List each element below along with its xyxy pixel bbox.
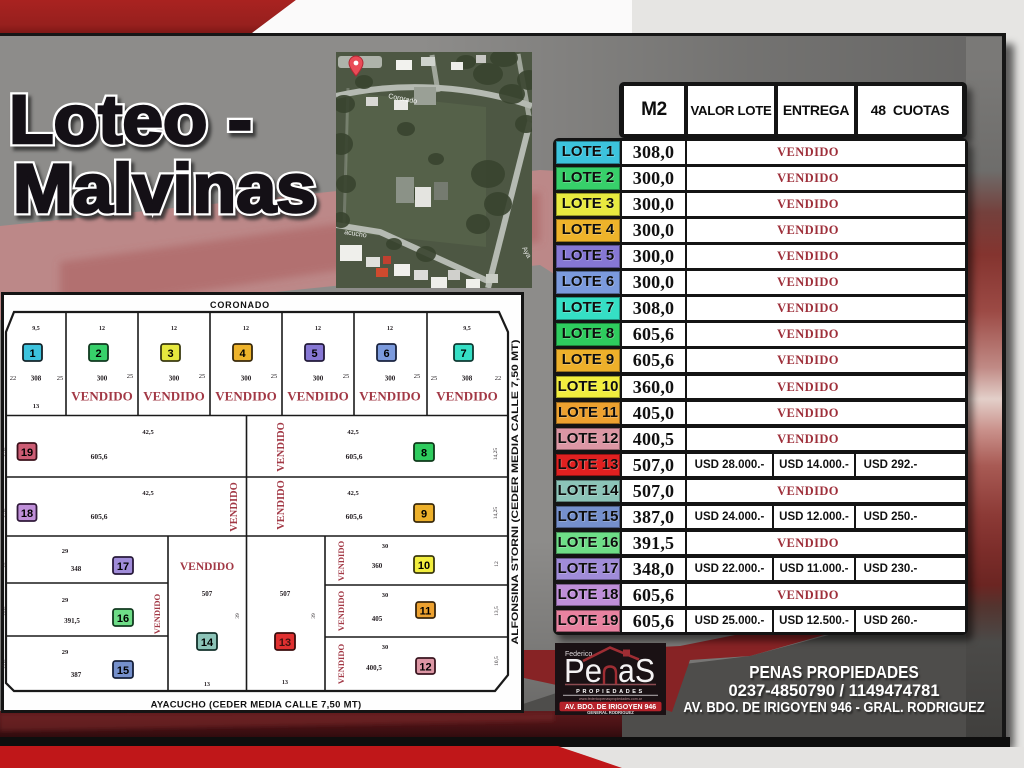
svg-text:13,5: 13,5 xyxy=(494,606,500,616)
svg-text:10,5: 10,5 xyxy=(1,659,7,669)
svg-text:300: 300 xyxy=(241,375,252,383)
svg-text:308: 308 xyxy=(462,375,473,383)
svg-text:22: 22 xyxy=(10,375,17,382)
svg-text:9,5: 9,5 xyxy=(463,326,471,332)
svg-text:VENDIDO: VENDIDO xyxy=(152,594,162,635)
svg-text:12: 12 xyxy=(99,326,105,332)
svg-text:22: 22 xyxy=(495,375,502,382)
svg-text:Loteo -: Loteo - xyxy=(9,81,252,158)
svg-text:29: 29 xyxy=(62,649,69,656)
svg-text:ALFONSINA STORNI (CEDER MEDIA: ALFONSINA STORNI (CEDER MEDIA CALLE 7,50… xyxy=(510,340,521,645)
svg-text:12: 12 xyxy=(387,326,393,332)
svg-text:7: 7 xyxy=(460,348,466,360)
svg-text:12: 12 xyxy=(315,326,321,332)
svg-text:348: 348 xyxy=(71,565,82,573)
svg-text:300: 300 xyxy=(169,375,180,383)
svg-text:605,6: 605,6 xyxy=(346,452,363,461)
svg-text:507: 507 xyxy=(202,590,213,598)
svg-text:Malvinas: Malvinas xyxy=(13,150,316,227)
svg-text:9: 9 xyxy=(421,509,427,521)
svg-text:3: 3 xyxy=(167,348,173,360)
svg-text:14,3: 14,3 xyxy=(1,447,7,457)
svg-text:605,6: 605,6 xyxy=(91,452,108,461)
svg-text:42,5: 42,5 xyxy=(347,490,359,497)
svg-text:19: 19 xyxy=(21,447,33,459)
svg-text:6: 6 xyxy=(383,348,389,360)
svg-text:13: 13 xyxy=(204,682,210,688)
svg-text:25: 25 xyxy=(431,375,438,382)
svg-text:VENDIDO: VENDIDO xyxy=(71,389,132,404)
svg-text:12: 12 xyxy=(494,561,500,567)
svg-text:VENDIDO: VENDIDO xyxy=(436,389,497,404)
svg-text:387: 387 xyxy=(71,671,82,679)
svg-text:14,3: 14,3 xyxy=(1,508,7,518)
svg-text:10,5: 10,5 xyxy=(494,656,500,666)
svg-text:42,5: 42,5 xyxy=(142,429,154,436)
svg-text:17: 17 xyxy=(117,561,129,573)
svg-text:300: 300 xyxy=(385,375,396,383)
svg-text:AYACUCHO (CEDER MEDIA CALLE 7,: AYACUCHO (CEDER MEDIA CALLE 7,50 MT) xyxy=(151,700,362,711)
svg-text:30: 30 xyxy=(382,644,389,651)
svg-text:16: 16 xyxy=(117,613,129,625)
svg-text:VENDIDO: VENDIDO xyxy=(336,541,346,582)
svg-text:12: 12 xyxy=(419,662,431,674)
svg-text:13: 13 xyxy=(279,637,291,649)
svg-text:VENDIDO: VENDIDO xyxy=(276,422,287,472)
svg-text:VENDIDO: VENDIDO xyxy=(143,389,204,404)
svg-text:405: 405 xyxy=(372,615,383,623)
svg-text:39: 39 xyxy=(235,613,241,619)
svg-text:12: 12 xyxy=(243,326,249,332)
svg-text:12: 12 xyxy=(171,326,177,332)
svg-text:391,5: 391,5 xyxy=(64,617,80,625)
svg-text:25: 25 xyxy=(271,373,278,380)
svg-text:VENDIDO: VENDIDO xyxy=(229,482,240,532)
svg-text:CORONADO: CORONADO xyxy=(210,300,270,310)
svg-text:18: 18 xyxy=(21,508,33,520)
svg-text:GENERAL RODRIGUEZ: GENERAL RODRIGUEZ xyxy=(587,710,634,715)
svg-text:400,5: 400,5 xyxy=(366,664,382,672)
svg-text:VENDIDO: VENDIDO xyxy=(180,561,234,573)
svg-text:VENDIDO: VENDIDO xyxy=(276,480,287,530)
svg-text:2: 2 xyxy=(95,348,101,360)
svg-text:8: 8 xyxy=(421,448,427,460)
svg-text:25: 25 xyxy=(127,373,134,380)
svg-text:14: 14 xyxy=(201,637,214,649)
svg-text:30: 30 xyxy=(382,543,389,550)
svg-text:605,6: 605,6 xyxy=(346,512,363,521)
svg-text:42,5: 42,5 xyxy=(142,490,154,497)
svg-text:13: 13 xyxy=(33,403,40,410)
svg-text:300: 300 xyxy=(313,375,324,383)
svg-text:aS: aS xyxy=(618,652,655,689)
svg-text:15: 15 xyxy=(1,562,7,568)
svg-text:25: 25 xyxy=(199,373,206,380)
svg-text:Pe: Pe xyxy=(564,652,602,689)
svg-text:9,5: 9,5 xyxy=(32,326,40,332)
svg-text:VENDIDO: VENDIDO xyxy=(287,389,348,404)
svg-text:25: 25 xyxy=(343,373,350,380)
svg-text:1: 1 xyxy=(29,348,35,360)
svg-text:11: 11 xyxy=(420,606,432,618)
svg-text:30: 30 xyxy=(382,592,389,599)
svg-text:13: 13 xyxy=(282,680,288,686)
svg-text:VENDIDO: VENDIDO xyxy=(215,389,276,404)
svg-text:15: 15 xyxy=(117,665,129,677)
svg-text:25: 25 xyxy=(57,375,64,382)
svg-text:25: 25 xyxy=(414,373,421,380)
svg-text:10: 10 xyxy=(418,560,430,572)
svg-text:507: 507 xyxy=(280,590,291,598)
svg-text:39: 39 xyxy=(311,613,317,619)
svg-text:13,5: 13,5 xyxy=(1,606,7,616)
svg-text:360: 360 xyxy=(372,562,383,570)
svg-text:14,25: 14,25 xyxy=(493,507,499,520)
svg-text:308: 308 xyxy=(31,375,42,383)
svg-text:14,25: 14,25 xyxy=(493,448,499,461)
svg-text:VENDIDO: VENDIDO xyxy=(336,591,346,632)
svg-text:5: 5 xyxy=(311,348,317,360)
svg-text:42,5: 42,5 xyxy=(347,429,359,436)
svg-text:4: 4 xyxy=(239,348,246,360)
svg-text:VENDIDO: VENDIDO xyxy=(359,389,420,404)
svg-text:VENDIDO: VENDIDO xyxy=(336,644,346,685)
svg-text:300: 300 xyxy=(97,375,108,383)
svg-text:PROPIEDADES: PROPIEDADES xyxy=(576,689,645,695)
svg-text:www.federicopenaspropiedades.c: www.federicopenaspropiedades.com.ar xyxy=(579,697,643,701)
svg-text:29: 29 xyxy=(62,597,69,604)
svg-text:29: 29 xyxy=(62,548,69,555)
svg-text:605,6: 605,6 xyxy=(91,512,108,521)
